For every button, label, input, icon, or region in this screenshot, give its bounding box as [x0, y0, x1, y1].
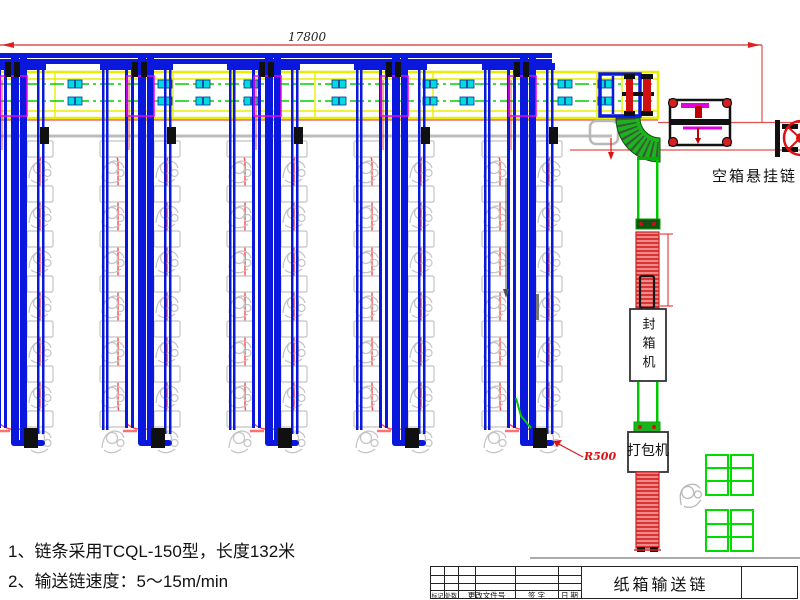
- title-block-divider: [741, 567, 742, 598]
- note-line-1: 1、链条采用TCQL-150型，长度132米: [8, 537, 295, 562]
- title-block-row-line: [431, 575, 581, 576]
- col-count: 处数: [444, 590, 458, 600]
- drawing-title: 纸箱输送链: [581, 567, 741, 598]
- sealing-machine-label: 封箱机: [630, 311, 666, 379]
- worker-figure: [676, 482, 705, 510]
- conveyor-layout-drawing: [0, 0, 800, 600]
- title-block: 标记 处数 更改文件号 签 字 日 期 纸箱输送链: [430, 566, 798, 599]
- overhead-track-band: [0, 72, 658, 118]
- col-mark: 标记: [431, 590, 444, 600]
- transfer-machine: [669, 99, 732, 147]
- col-sign: 签 字: [515, 590, 558, 600]
- return-wheel: [775, 120, 800, 157]
- empty-box-chain-label: 空箱悬挂链: [712, 165, 797, 186]
- carton-conveyor-2: [634, 382, 660, 432]
- launch-rail: [590, 121, 618, 160]
- note-line-2: 2、输送链速度：5～15m/min: [8, 567, 228, 592]
- carton-conveyor-1: [636, 160, 660, 229]
- roller-section-2: [634, 472, 661, 552]
- col-change-doc: 更改文件号: [458, 590, 515, 600]
- r500-leader: [553, 440, 583, 457]
- packing-machine-label: 打包机: [625, 440, 671, 460]
- col-date: 日 期: [558, 590, 581, 600]
- drawing-canvas: 17800 空箱悬挂链 封箱机 打包机 R500 1、链条采用TCQL-150型…: [0, 0, 800, 600]
- r500-radius-label: R500: [584, 450, 616, 463]
- curve-elbow-conveyor: [616, 118, 660, 162]
- pallet-stacks: [706, 455, 753, 551]
- drawing-frame-line: [530, 557, 800, 559]
- title-block-row-line: [431, 583, 581, 584]
- roller-section-1: [636, 232, 673, 308]
- total-length-dimension: 17800: [288, 30, 326, 44]
